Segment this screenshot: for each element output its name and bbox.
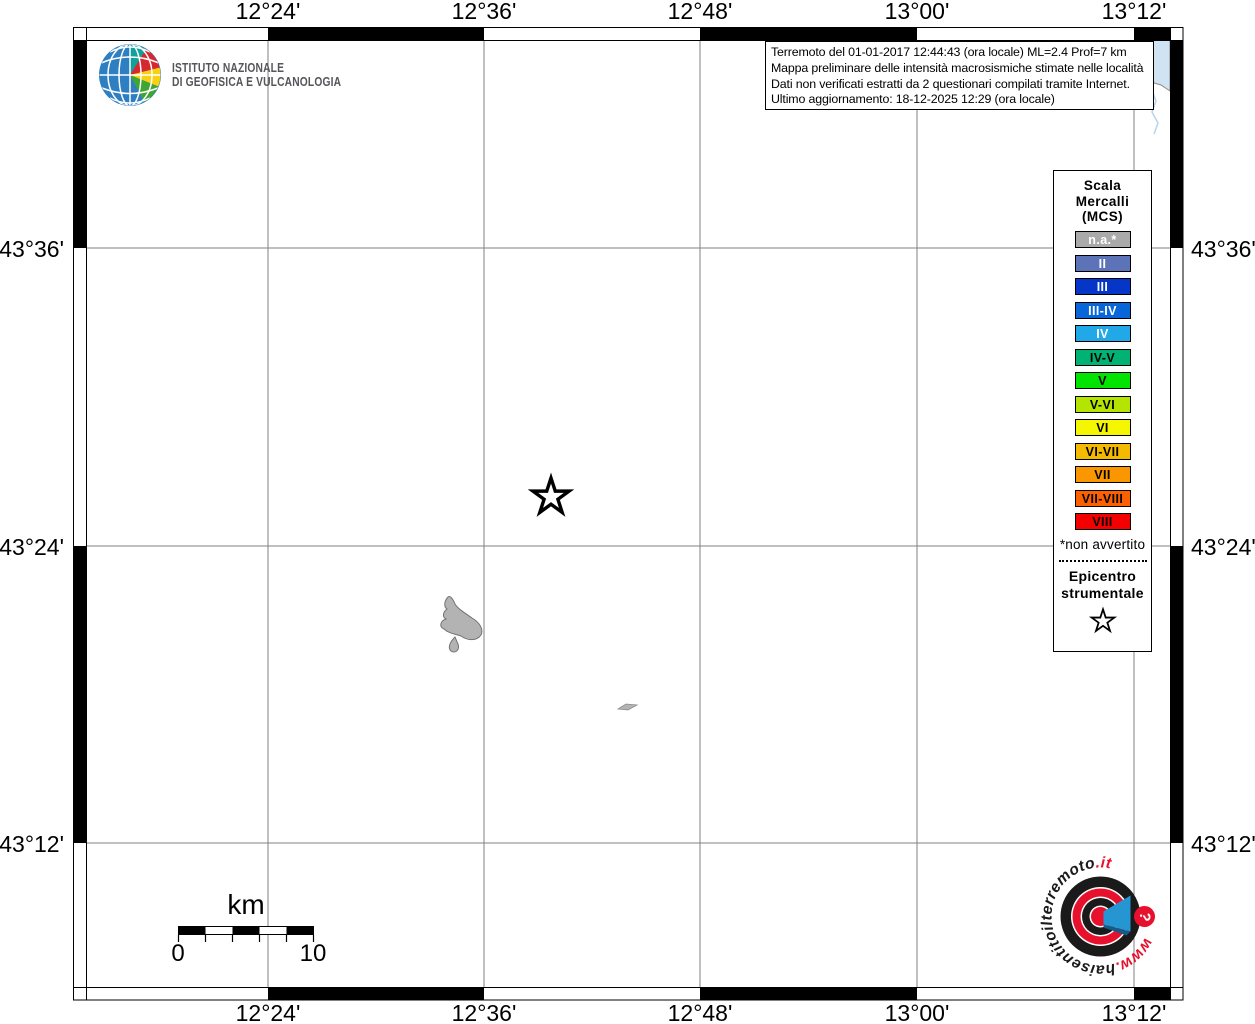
- latitude-label: 43°36': [1191, 236, 1255, 263]
- latitude-label: 43°12': [1191, 831, 1255, 858]
- longitude-label: 12°36': [419, 1000, 549, 1024]
- epicenter-legend-section: Epicentro strumentale: [1054, 568, 1151, 641]
- earthquake-info-box: Terremoto del 01-01-2017 12:44:43 (ora l…: [765, 41, 1154, 110]
- info-line-data-source: Dati non verificati estratti da 2 questi…: [771, 77, 1148, 93]
- longitude-label: 13°00': [852, 1000, 982, 1024]
- intensity-swatch-v-vi: V-VI: [1075, 396, 1131, 413]
- intensity-swatch-vi-vii: VI-VII: [1075, 443, 1131, 460]
- legend-title: Scala: [1054, 178, 1151, 194]
- question-mark-icon: ?: [1134, 906, 1155, 927]
- intensity-swatch-iv: IV: [1075, 325, 1131, 342]
- epicenter-star-icon: [533, 478, 569, 512]
- ingv-name-line1: ISTITUTO NAZIONALE: [172, 61, 341, 75]
- longitude-label: 12°24': [203, 0, 333, 25]
- intensity-swatch-na: n.a.*: [1075, 231, 1131, 248]
- graticule: [87, 41, 1171, 988]
- small-lake-shape: [618, 704, 637, 710]
- intensity-swatch-iv-v: IV-V: [1075, 349, 1131, 366]
- epicenter-label: Epicentro: [1054, 568, 1151, 585]
- longitude-label: 12°24': [203, 1000, 333, 1024]
- ingv-name-line2: DI GEOFISICA E VULCANOLOGIA: [172, 75, 341, 89]
- legend-divider: [1059, 560, 1147, 562]
- ingv-globe-icon: [99, 44, 161, 106]
- intensity-swatch-iii-iv: III-IV: [1075, 302, 1131, 319]
- info-line-last-update: Ultimo aggiornamento: 18-12-2025 12:29 (…: [771, 92, 1148, 108]
- intensity-swatch-vii: VII: [1075, 466, 1131, 483]
- info-line-map-type: Mappa preliminare delle intensità macros…: [771, 61, 1148, 77]
- longitude-label: 12°36': [419, 0, 549, 25]
- latitude-label: 43°24': [0, 534, 64, 561]
- scale-bar-end: 10: [283, 940, 343, 968]
- scale-bar-start: 0: [148, 940, 208, 968]
- info-line-event: Terremoto del 01-01-2017 12:44:43 (ora l…: [771, 45, 1148, 61]
- intensity-swatch-v: V: [1075, 372, 1131, 389]
- legend-title: (MCS): [1054, 209, 1151, 225]
- longitude-label: 12°48': [635, 1000, 765, 1024]
- intensity-swatch-vii-viii: VII-VIII: [1075, 490, 1131, 507]
- intensity-swatch-ii: II: [1075, 255, 1131, 272]
- macroseismic-map: 12°24' 12°36' 12°48' 13°00' 13°12' 12°24…: [0, 0, 1255, 1024]
- legend-title: Mercalli: [1054, 194, 1151, 210]
- longitude-label: 13°12': [1069, 0, 1199, 25]
- lake-shape: [441, 596, 637, 710]
- epicenter-label: strumentale: [1054, 585, 1151, 602]
- latitude-label: 43°24': [1191, 534, 1255, 561]
- longitude-label: 13°00': [852, 0, 982, 25]
- haisentito-logo: ? www.haisentitoilterremoto.it: [1038, 854, 1163, 979]
- latitude-label: 43°12': [0, 831, 64, 858]
- mercalli-scale-legend: Scala Mercalli (MCS) n.a.* II III III-IV…: [1053, 170, 1152, 652]
- intensity-swatch-viii: VIII: [1075, 513, 1131, 530]
- intensity-swatch-iii: III: [1075, 278, 1131, 295]
- map-frame: [74, 28, 1184, 1001]
- longitude-label: 13°12': [1069, 1000, 1199, 1024]
- ingv-logo: ISTITUTO NAZIONALE DI GEOFISICA E VULCAN…: [99, 44, 378, 106]
- scale-bar-unit: km: [186, 889, 306, 921]
- intensity-swatch-vi: VI: [1075, 419, 1131, 436]
- legend-footnote: *non avvertito: [1054, 537, 1151, 552]
- latitude-label: 43°36': [0, 236, 64, 263]
- epicenter-star-icon: [1086, 604, 1120, 636]
- longitude-label: 12°48': [635, 0, 765, 25]
